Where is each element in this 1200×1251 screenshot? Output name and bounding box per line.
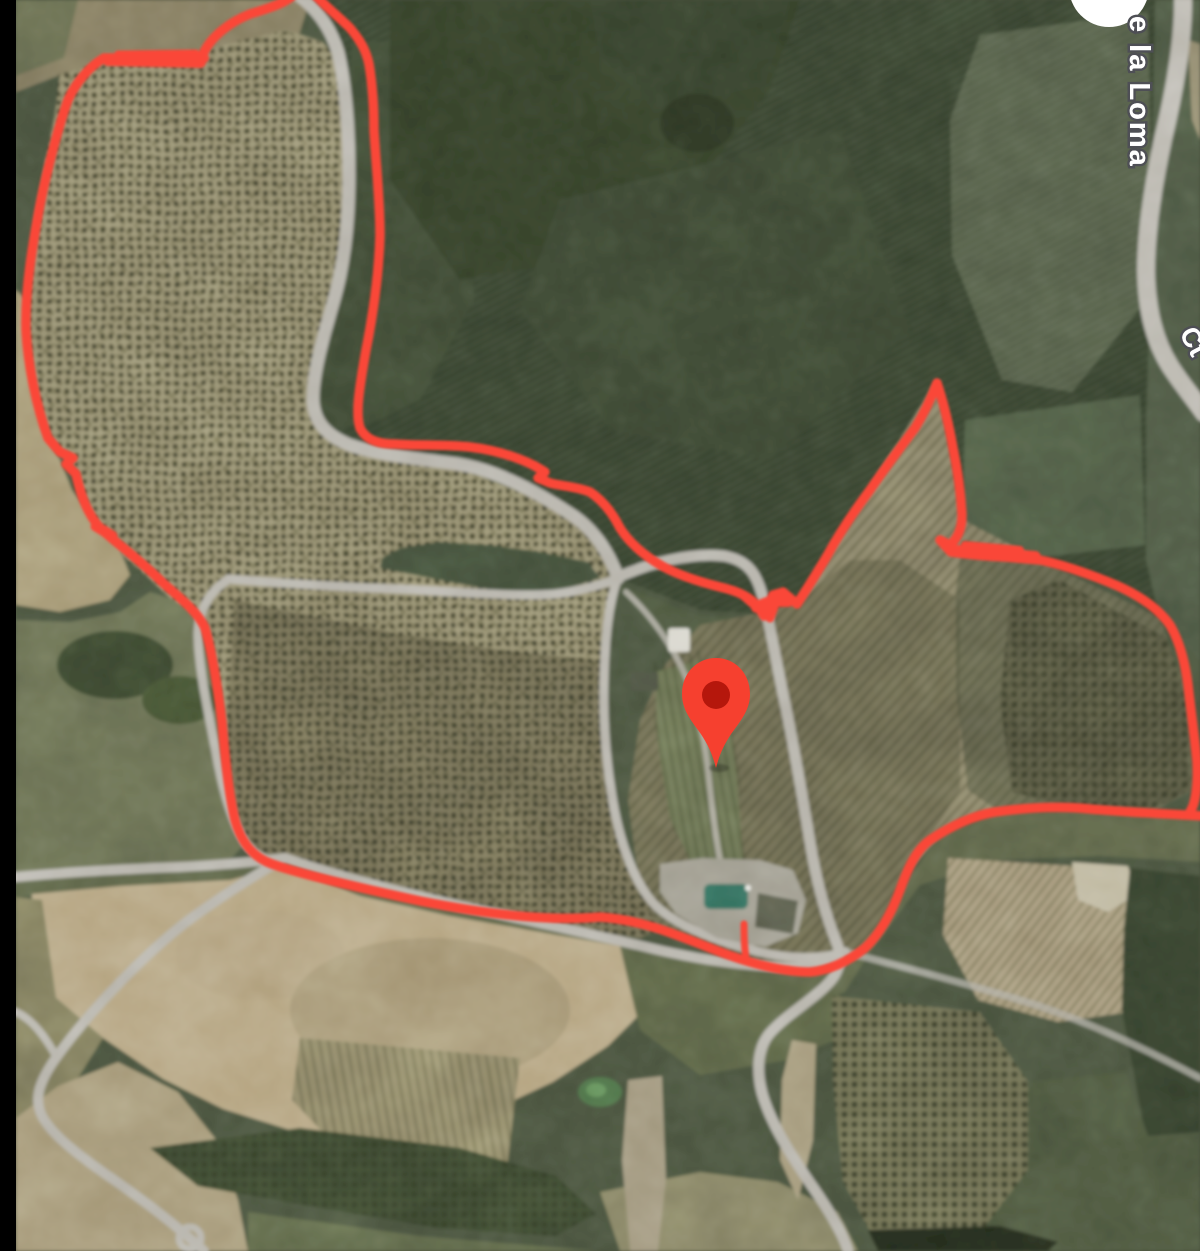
svg-text:e la Loma: e la Loma: [1123, 16, 1155, 168]
